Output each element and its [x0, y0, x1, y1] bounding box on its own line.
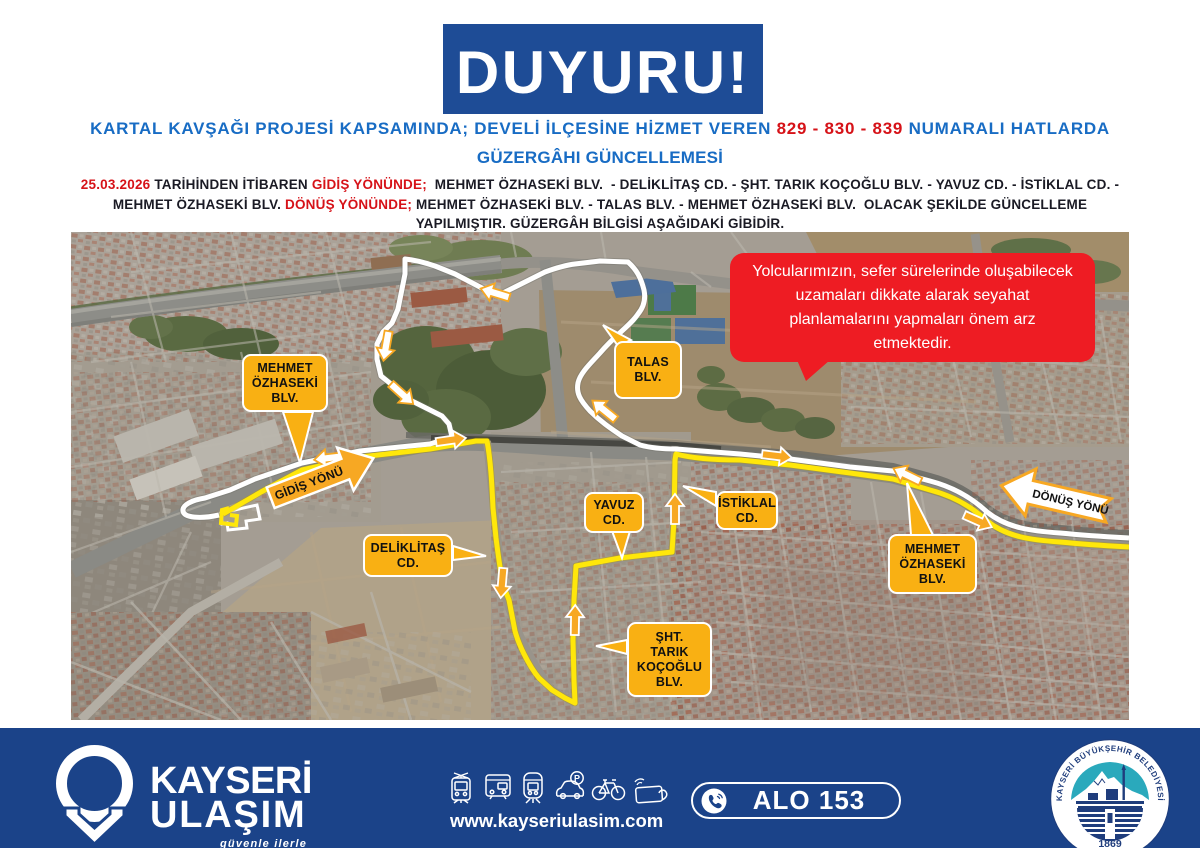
svg-text:1869: 1869: [1098, 838, 1122, 848]
